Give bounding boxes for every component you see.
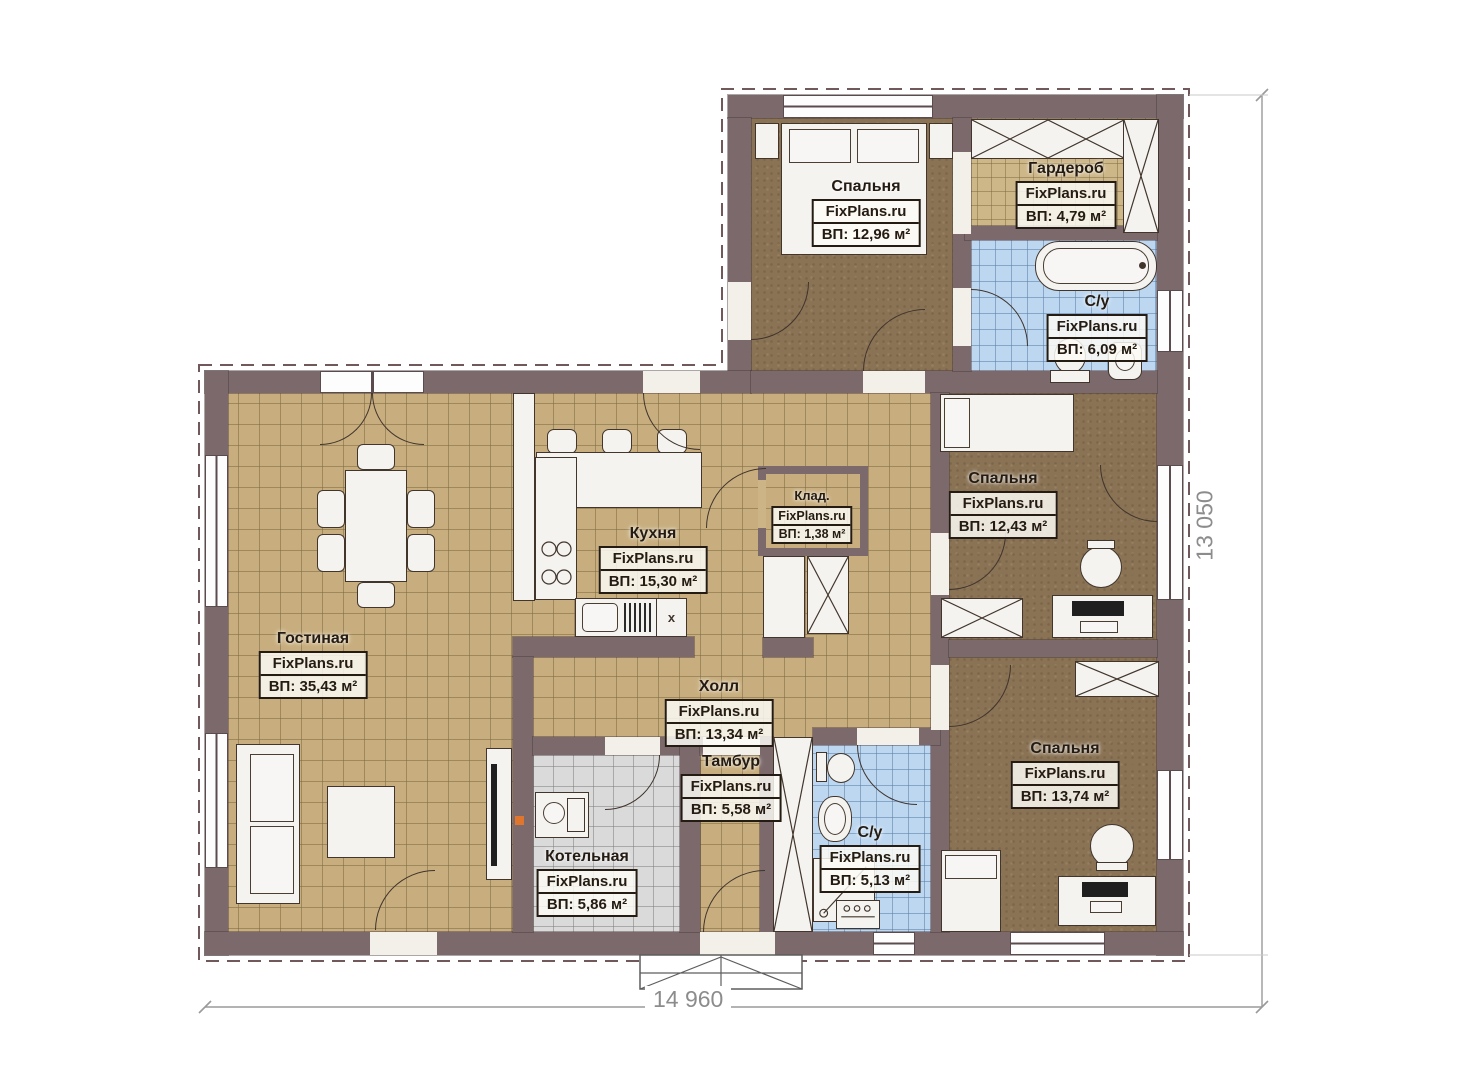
door-opening — [931, 533, 949, 595]
dishwasher: x — [656, 598, 687, 637]
room-info-box: FixPlans.ruВП: 4,79 м² — [1016, 181, 1117, 229]
watermark: FixPlans.ru — [1013, 763, 1118, 786]
room-area: ВП: 15,30 м² — [601, 571, 706, 592]
watermark: FixPlans.ru — [261, 653, 366, 676]
room-label-bedroom-top: Спальня FixPlans.ruВП: 12,96 м² — [812, 178, 921, 247]
watermark: FixPlans.ru — [1049, 316, 1146, 339]
door-opening — [643, 371, 700, 393]
boiler-panel — [567, 798, 585, 832]
room-info-box: FixPlans.ruВП: 35,43 м² — [259, 651, 368, 699]
tv — [491, 764, 497, 866]
room-label-bedroom-bottom: Спальня FixPlans.ruВП: 13,74 м² — [1011, 740, 1120, 809]
chair-backrest — [1096, 862, 1128, 871]
room-name: Холл — [665, 678, 774, 696]
toilet — [827, 753, 855, 783]
toilet-tank — [816, 752, 827, 782]
wardrobe-x — [807, 556, 849, 634]
entry-porch — [640, 955, 802, 989]
room-label-living: Гостиная FixPlans.ruВП: 35,43 м² — [259, 630, 368, 699]
room-label-hall: Холл FixPlans.ruВП: 13,34 м² — [665, 678, 774, 747]
wardrobe-x — [941, 598, 1023, 638]
door-opening — [863, 371, 925, 393]
window — [1157, 770, 1183, 860]
kitchen-tall-cabinets — [513, 393, 535, 601]
room-info-box: FixPlans.ruВП: 1,38 м² — [771, 506, 852, 544]
door-opening — [728, 282, 751, 340]
window — [205, 733, 228, 868]
monitor — [1072, 601, 1124, 616]
room-info-box: FixPlans.ruВП: 13,74 м² — [1011, 761, 1120, 809]
room-area: ВП: 35,43 м² — [261, 676, 366, 697]
washing-machine — [836, 900, 880, 929]
closet — [763, 556, 805, 638]
room-name: Котельная — [537, 848, 638, 866]
room-area: ВП: 5,13 м² — [822, 870, 919, 891]
door-opening — [605, 737, 660, 755]
room-info-box: FixPlans.ruВП: 12,43 м² — [949, 491, 1058, 539]
dish-rack — [624, 603, 654, 632]
room-info-box: FixPlans.ruВП: 5,13 м² — [820, 845, 921, 893]
room-name: С/у — [820, 824, 921, 842]
dining-chair — [407, 534, 435, 572]
room-label-boiler: Котельная FixPlans.ruВП: 5,86 м² — [537, 848, 638, 917]
door-opening — [857, 728, 919, 745]
boiler-dial — [543, 802, 565, 824]
wall-segment — [751, 371, 1157, 393]
porch-steps-lines — [640, 955, 802, 989]
pillow — [789, 129, 851, 163]
room-name: Спальня — [949, 470, 1058, 488]
chair-backrest — [1087, 540, 1115, 549]
door-opening — [953, 288, 971, 346]
room-name: Кухня — [599, 525, 708, 543]
nightstand — [929, 123, 953, 159]
bathtub-drain — [1139, 262, 1146, 269]
door-opening — [370, 932, 437, 955]
bar-stool — [547, 429, 577, 454]
room-area: ВП: 12,96 м² — [814, 224, 919, 245]
room-area: ВП: 1,38 м² — [773, 526, 850, 542]
watermark: FixPlans.ru — [951, 493, 1056, 516]
dining-chair — [357, 444, 395, 470]
wall-segment — [763, 638, 813, 657]
watermark: FixPlans.ru — [539, 871, 636, 894]
window — [1157, 290, 1183, 352]
dining-chair — [407, 490, 435, 528]
nightstand — [755, 123, 779, 159]
kitchen-sink — [582, 603, 618, 632]
room-label-bedroom-mid: Спальня FixPlans.ruВП: 12,43 м² — [949, 470, 1058, 539]
room-info-box: FixPlans.ruВП: 5,86 м² — [537, 869, 638, 917]
wardrobe-x — [971, 119, 1125, 159]
room-label-wardrobe: Гардероб FixPlans.ruВП: 4,79 м² — [1016, 160, 1117, 229]
dining-chair — [357, 582, 395, 608]
entry-door-opening — [700, 932, 775, 955]
window — [1010, 932, 1105, 955]
pillow — [857, 129, 919, 163]
wardrobe-x — [1123, 119, 1159, 233]
window — [873, 932, 915, 955]
keyboard — [1080, 621, 1118, 633]
office-chair — [1080, 546, 1122, 588]
dimension-height-label: 13 050 — [1192, 466, 1219, 586]
watermark: FixPlans.ru — [822, 847, 919, 870]
room-info-box: FixPlans.ruВП: 5,58 м² — [681, 774, 782, 822]
door-opening — [931, 665, 949, 730]
room-label-bath-bottom: С/у FixPlans.ruВП: 5,13 м² — [820, 824, 921, 893]
keyboard — [1090, 901, 1122, 913]
dining-chair — [317, 490, 345, 528]
watermark: FixPlans.ru — [683, 776, 780, 799]
room-name: С/у — [1047, 293, 1148, 311]
room-area: ВП: 13,74 м² — [1013, 786, 1118, 807]
room-area: ВП: 13,34 м² — [667, 724, 772, 745]
wall-segment — [513, 637, 694, 657]
room-name: Гостиная — [259, 630, 368, 648]
room-area: ВП: 4,79 м² — [1018, 206, 1115, 227]
watermark: FixPlans.ru — [814, 201, 919, 224]
room-name: Спальня — [812, 178, 921, 196]
room-name: Гардероб — [1016, 160, 1117, 178]
toilet-tank — [1050, 370, 1090, 383]
stove — [537, 532, 575, 598]
room-label-storage: Клад. FixPlans.ruВП: 1,38 м² — [771, 488, 852, 544]
floor-plan: x 14 960 13 050 Спальня FixPlans.ruВП: 1… — [0, 0, 1473, 1080]
room-area: ВП: 5,86 м² — [539, 894, 636, 915]
pillow — [944, 398, 970, 448]
room-info-box: FixPlans.ruВП: 15,30 м² — [599, 546, 708, 594]
room-name: Клад. — [771, 488, 852, 503]
watermark: FixPlans.ru — [1018, 183, 1115, 206]
wardrobe-x — [1075, 661, 1159, 697]
room-info-box: FixPlans.ruВП: 6,09 м² — [1047, 314, 1148, 362]
watermark: FixPlans.ru — [667, 701, 772, 724]
dining-chair — [317, 534, 345, 572]
watermark: FixPlans.ru — [601, 548, 706, 571]
room-info-box: FixPlans.ruВП: 13,34 м² — [665, 699, 774, 747]
room-area: ВП: 5,58 м² — [683, 799, 780, 820]
coffee-table — [327, 786, 395, 858]
dining-table — [345, 470, 407, 582]
window — [783, 95, 933, 118]
bar-stool — [602, 429, 632, 454]
dimension-width-label: 14 960 — [645, 986, 731, 1013]
sofa-cushion — [250, 754, 294, 822]
window — [1157, 465, 1183, 600]
room-area: ВП: 6,09 м² — [1049, 339, 1146, 360]
wall-segment — [513, 657, 533, 932]
window — [205, 455, 228, 607]
wall-segment — [949, 640, 1157, 657]
bathtub-inner — [1043, 248, 1149, 284]
room-label-kitchen: Кухня FixPlans.ruВП: 15,30 м² — [599, 525, 708, 594]
room-area: ВП: 12,43 м² — [951, 516, 1056, 537]
french-door-opening — [320, 371, 424, 393]
computer — [1082, 882, 1128, 897]
room-label-vestibule: Тамбур FixPlans.ruВП: 5,58 м² — [681, 753, 782, 822]
watermark: FixPlans.ru — [773, 508, 850, 526]
tv-stand — [486, 748, 512, 880]
socket-marker — [515, 816, 524, 825]
sofa-cushion — [250, 826, 294, 894]
room-label-bath-top: С/у FixPlans.ruВП: 6,09 м² — [1047, 293, 1148, 362]
pillow — [945, 855, 997, 879]
room-name: Спальня — [1011, 740, 1120, 758]
room-info-box: FixPlans.ruВП: 12,96 м² — [812, 199, 921, 247]
passage-opening — [953, 152, 971, 234]
room-name: Тамбур — [681, 753, 782, 771]
